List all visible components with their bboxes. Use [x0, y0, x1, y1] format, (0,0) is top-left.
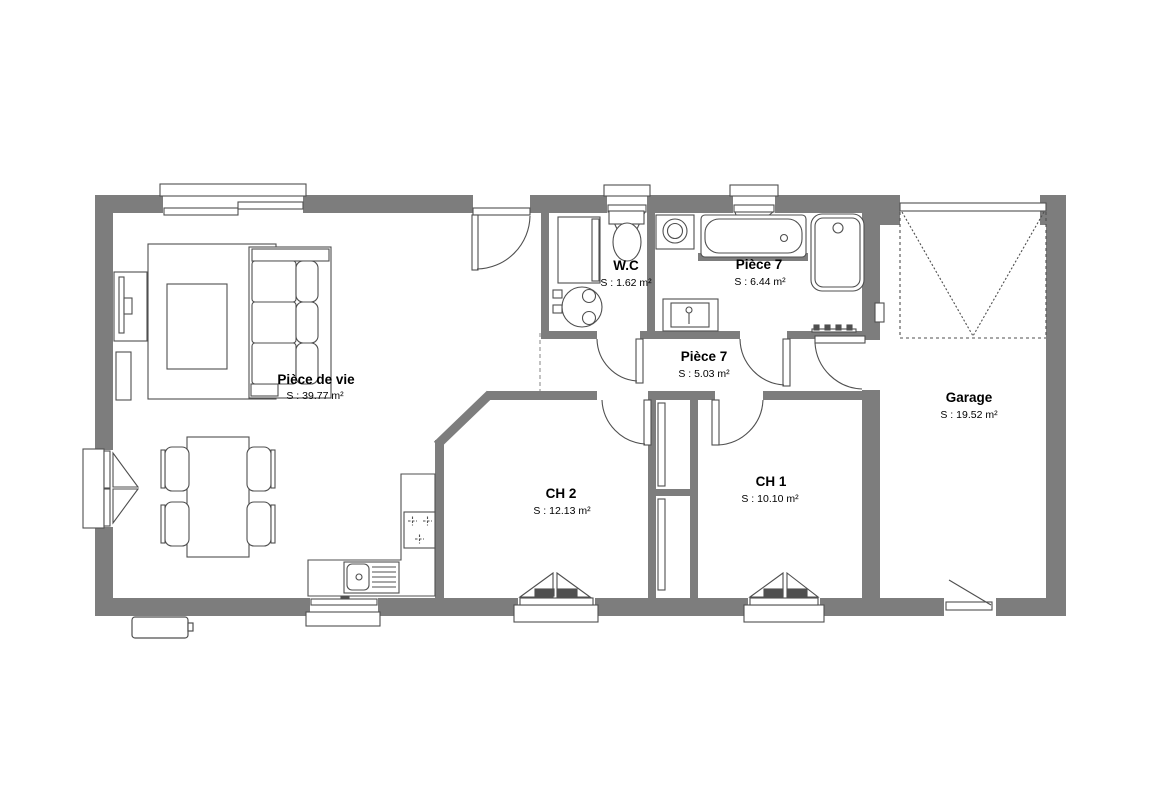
bathroom-sink — [663, 299, 718, 331]
bathtub — [701, 215, 806, 257]
coffee-table — [167, 284, 227, 369]
kitchen — [308, 474, 435, 596]
toilet — [609, 211, 644, 261]
window-living-top — [160, 184, 306, 215]
room-area-bedroom2: S : 12.13 m² — [533, 505, 591, 517]
door-swing-arc — [740, 339, 784, 385]
room-label-garage: Garage — [946, 390, 993, 405]
sofa-seat-cushion — [252, 261, 296, 302]
radiator-bracket — [847, 325, 852, 330]
outdoor-unit-tab — [188, 623, 193, 631]
wall-hall-north — [541, 331, 597, 339]
faucet — [686, 307, 692, 313]
room-area-bathroom: S : 6.44 m² — [734, 276, 786, 288]
door-swing-arc — [815, 343, 862, 389]
door-swing-arc — [718, 400, 763, 445]
window-sash — [238, 202, 303, 209]
garage-door-panel — [900, 203, 1046, 211]
chair-armrest — [161, 505, 165, 543]
kitchen-sink — [344, 562, 399, 593]
wall-bottom — [95, 598, 310, 616]
wc-door — [597, 339, 643, 383]
basin-tap — [583, 312, 596, 325]
wall-top — [647, 195, 733, 213]
faucet — [356, 574, 362, 580]
towel-radiator — [812, 325, 856, 332]
washer-drum-inner — [668, 224, 683, 239]
room-label-bathroom: Pièce 7 — [736, 257, 783, 272]
washing-machine — [656, 215, 694, 249]
sofa-back-cushion — [296, 261, 318, 302]
garage-back-door — [944, 580, 996, 618]
basin-hinge — [553, 290, 562, 298]
sofa-armrest-top — [252, 249, 329, 261]
door-leaf — [644, 400, 651, 445]
wall-kitchen-ch2 — [435, 440, 444, 598]
closet-door-leaf — [658, 499, 665, 590]
room-area-wc: S : 1.62 m² — [600, 277, 652, 289]
window-bedroom2 — [514, 573, 598, 622]
shutter-slat — [788, 589, 807, 596]
wall-house-garage — [862, 390, 880, 598]
door-leaf — [712, 400, 719, 445]
chair-armrest — [161, 450, 165, 488]
toilet-bowl — [613, 223, 641, 261]
door-swing-arc — [597, 339, 637, 381]
wall-wc-bath — [647, 213, 655, 331]
bathroom-door — [740, 339, 790, 386]
window-sill — [730, 185, 778, 196]
room-label-bedroom2: CH 2 — [546, 486, 577, 501]
sofa-armrest-bottom — [251, 384, 278, 396]
garage-door-vee — [902, 212, 973, 336]
wall-right — [1046, 195, 1066, 616]
wall-wc-west — [541, 213, 549, 339]
dining-chair — [247, 502, 271, 546]
wc-cabinet — [558, 217, 600, 283]
bathtub-drain — [781, 235, 788, 242]
dining-chair — [165, 447, 189, 491]
room-area-bedroom1: S : 10.10 m² — [741, 493, 799, 505]
room-label-living: Pièce de vie — [277, 372, 355, 387]
room-area-living: S : 39.77 m² — [286, 390, 344, 402]
wall-hall-north — [640, 331, 740, 339]
sofa-seat-cushion — [252, 302, 296, 343]
room-area-garage: S : 19.52 m² — [940, 409, 998, 421]
floor-plan-canvas: Pièce de vie S : 39.77 m² W.C S : 1.62 m… — [0, 0, 1155, 800]
side-cabinet — [116, 352, 131, 400]
window-sill — [744, 605, 824, 622]
window-sill — [83, 449, 104, 528]
window-glazing — [104, 489, 110, 526]
window-glazing — [311, 599, 377, 605]
room-label-hallway: Pièce 7 — [681, 349, 728, 364]
chair-armrest — [271, 505, 275, 543]
shutter-slat — [535, 589, 554, 596]
window-glazing — [750, 598, 818, 605]
room-label-bedroom1: CH 1 — [756, 474, 787, 489]
bathroom-fixtures — [656, 214, 864, 332]
wall-bottom — [995, 598, 1066, 616]
wall-left — [95, 195, 113, 450]
shutter-triangle — [113, 489, 138, 523]
window-sill — [160, 184, 306, 196]
dining-table — [187, 437, 249, 557]
dining-set — [161, 437, 275, 557]
closets — [658, 403, 665, 590]
window-sill — [306, 612, 380, 626]
window-sill — [604, 185, 650, 196]
wall-diagonal — [437, 394, 490, 445]
basin-hinge — [553, 305, 562, 313]
shower — [811, 214, 864, 291]
window-sash — [164, 208, 238, 215]
wall-vent — [875, 303, 884, 322]
bedroom1-door — [712, 400, 763, 445]
dining-chair — [247, 447, 271, 491]
door-swing-arc — [602, 400, 645, 444]
tv-bracket — [124, 298, 132, 314]
room-label-wc: W.C — [613, 258, 639, 273]
shutter-triangle — [113, 453, 138, 487]
entry-door — [472, 208, 530, 270]
basin-bowl — [562, 287, 602, 327]
wall-closet-right — [690, 400, 698, 598]
radiator-bracket — [836, 325, 841, 330]
outdoor-unit-body — [132, 617, 188, 638]
wall-bottom — [378, 598, 518, 616]
room-labels: Pièce de vie S : 39.77 m² W.C S : 1.62 m… — [277, 257, 998, 517]
room-area-hallway: S : 5.03 m² — [678, 368, 730, 380]
floor-plan-page: Pièce de vie S : 39.77 m² W.C S : 1.62 m… — [0, 0, 1155, 800]
wall-hall-south — [487, 391, 597, 400]
window-glazing — [734, 205, 774, 212]
closet-door-leaf — [658, 403, 665, 486]
garage-sectional-door — [900, 203, 1046, 338]
shower-drain — [833, 223, 843, 233]
outdoor-unit — [132, 617, 193, 638]
wc-basin — [553, 287, 602, 327]
door-leaf — [946, 602, 992, 610]
tv-unit — [114, 272, 147, 341]
window-bedroom1 — [744, 573, 824, 622]
dining-chair — [165, 502, 189, 546]
door-threshold — [473, 208, 530, 215]
wall-hall-south — [763, 391, 862, 400]
radiator-bracket — [814, 325, 819, 330]
wall-top — [530, 195, 607, 213]
window-glazing — [520, 598, 593, 605]
chair-armrest — [271, 450, 275, 488]
wall-bottom — [595, 598, 748, 616]
wall-hall-south — [648, 391, 715, 400]
shutter-slat — [764, 589, 783, 596]
garage-door-vee — [973, 212, 1044, 336]
wall-top — [303, 195, 473, 213]
wall-bottom — [820, 598, 945, 616]
wall-closet-divider — [648, 489, 698, 496]
shutter-slat — [558, 589, 577, 596]
basin-tap — [583, 290, 596, 303]
door-leaf — [815, 336, 865, 343]
hall-garage-door — [815, 336, 865, 389]
sofa-back-cushion — [296, 302, 318, 343]
door-swing-arc — [477, 216, 530, 269]
window-glazing — [104, 451, 110, 488]
door-leaf — [783, 339, 790, 386]
cooktop — [404, 512, 435, 548]
radiator-bracket — [825, 325, 830, 330]
bedroom2-door — [602, 400, 651, 445]
door-leaf — [636, 339, 643, 383]
door-leaf — [472, 215, 478, 270]
toilet-tank — [609, 211, 644, 224]
window-sill — [514, 605, 598, 622]
tv-screen — [119, 277, 124, 333]
cabinet-door — [592, 219, 599, 281]
window-living-left — [83, 449, 138, 528]
